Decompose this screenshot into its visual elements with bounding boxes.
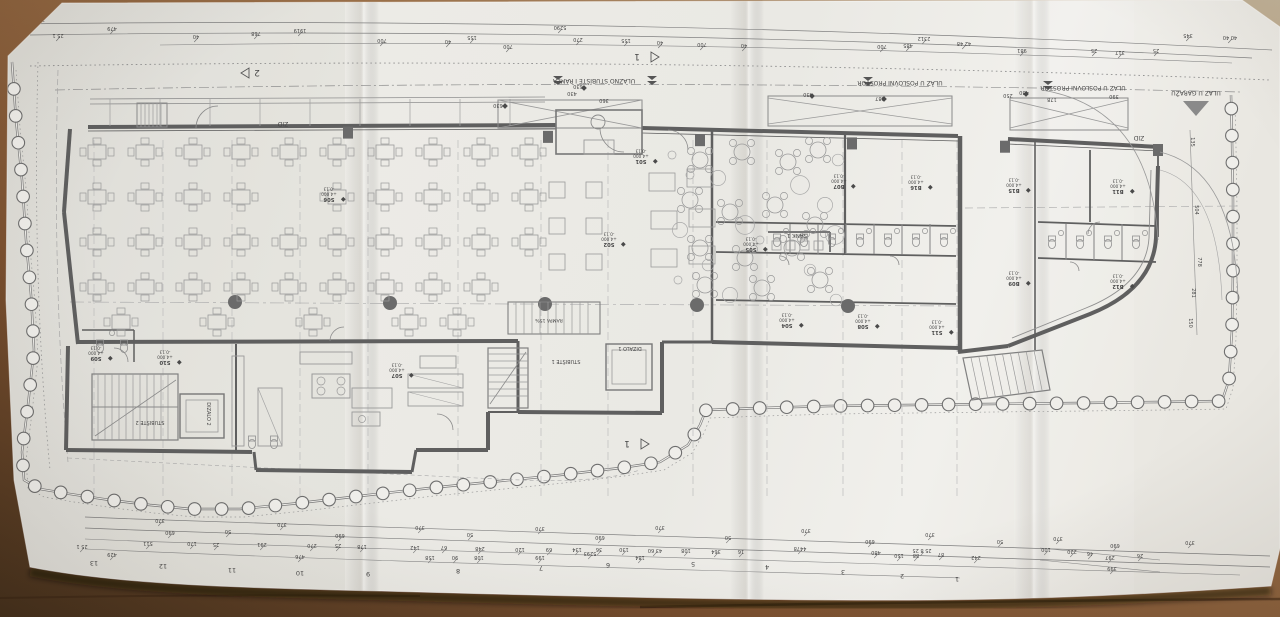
dimension-label: 690 <box>1110 542 1120 548</box>
svg-text:158: 158 <box>425 554 435 560</box>
svg-text:270: 270 <box>307 542 317 548</box>
svg-text:25: 25 <box>213 541 219 547</box>
dimension-label: 480 <box>871 549 881 555</box>
svg-text:ULAZ U POSLOVNI PROSTOR: ULAZ U POSLOVNI PROSTOR <box>857 79 942 86</box>
dimension-label: 364 <box>711 548 721 554</box>
svg-text:-0.13: -0.13 <box>603 232 614 237</box>
svg-text:43 60: 43 60 <box>648 547 662 553</box>
dimension-label: 25 1 <box>52 32 63 38</box>
dimension-label: 370 <box>535 525 545 531</box>
svg-text:317: 317 <box>1115 49 1125 55</box>
dimension-label: 370 <box>801 527 811 533</box>
svg-text:1: 1 <box>624 438 630 448</box>
svg-text:370: 370 <box>925 531 935 537</box>
svg-text:100: 100 <box>1041 546 1051 552</box>
label-rampa-15: RAMPA 15% <box>535 317 563 323</box>
grid-axis-number: 9 <box>366 570 370 578</box>
svg-text:155: 155 <box>621 37 631 43</box>
svg-text:13: 13 <box>90 559 98 567</box>
dimension-label: 25 <box>335 542 341 548</box>
grid-axis-number: 6 <box>606 561 610 569</box>
dimension-label: 504 <box>1193 205 1199 215</box>
dimension-label: 429 <box>107 551 117 557</box>
label-stubiste-1: STUBIŠTE 1 <box>552 358 581 365</box>
dimension-label: 479 <box>107 25 117 31</box>
svg-text:STUBIŠTE 1: STUBIŠTE 1 <box>552 358 581 365</box>
dimension-label: 69 <box>546 546 552 552</box>
dimension-label: 370 <box>155 517 165 523</box>
dimension-label: 630 <box>493 102 503 108</box>
dimension-label: 370 <box>655 524 665 530</box>
floor-plan-photo-svg: ULAZNO STUBIŠTE I RAMPAULAZ U POSLOVNI P… <box>0 0 1280 617</box>
dimension-label: 250 <box>1003 92 1013 98</box>
svg-text:364: 364 <box>711 548 721 554</box>
svg-text:430: 430 <box>1019 89 1029 95</box>
svg-text:479: 479 <box>107 25 117 31</box>
dimension-label: 87 <box>938 551 944 557</box>
svg-text:120: 120 <box>515 546 525 552</box>
dimension-label: 150 <box>894 552 904 558</box>
svg-text:67: 67 <box>441 544 447 550</box>
svg-text:87: 87 <box>938 551 944 557</box>
dimension-label: 40 <box>193 33 199 39</box>
svg-text:178: 178 <box>1047 96 1057 102</box>
svg-text:178: 178 <box>357 543 367 549</box>
dimension-label: 26 <box>1137 552 1143 558</box>
dimension-label: 40 40 <box>1223 34 1237 40</box>
svg-text:50: 50 <box>725 534 731 540</box>
dimension-label: 43 60 <box>648 547 662 553</box>
svg-text:155: 155 <box>467 34 477 40</box>
dimension-label: 134 <box>572 546 582 552</box>
dimension-label: 50 <box>225 528 231 534</box>
svg-text:504: 504 <box>1193 205 1199 215</box>
svg-text:4: 4 <box>765 563 769 571</box>
dimension-label: 430 <box>1019 89 1029 95</box>
dimension-label: 88 <box>913 552 919 558</box>
dimension-label: 430 <box>567 90 577 96</box>
svg-text:ULAZ U GARAŽU: ULAZ U GARAŽU <box>1171 89 1221 97</box>
grid-axis-number: 8 <box>456 567 460 575</box>
photo-of-floor-plan: ULAZNO STUBIŠTE I RAMPAULAZ U POSLOVNI P… <box>0 0 1280 617</box>
label-ulaz-u-garazu: ULAZ U GARAŽU <box>1171 89 1221 97</box>
svg-text:135: 135 <box>1189 137 1195 147</box>
dimension-label: 40 <box>445 38 451 44</box>
label-dizalo-1: DIZALO 1 <box>618 345 641 351</box>
svg-text:700: 700 <box>377 37 387 43</box>
svg-text:-0.13: -0.13 <box>1112 274 1123 279</box>
dimension-label: 40 <box>657 39 663 45</box>
svg-text:690: 690 <box>165 529 175 535</box>
label-sank-1: SANK 1 <box>787 232 807 238</box>
svg-text:297: 297 <box>1105 554 1115 560</box>
dimension-label: 700 <box>503 43 513 49</box>
svg-text:ZID: ZID <box>277 120 288 127</box>
dimension-label: 178 <box>357 543 367 549</box>
svg-text:10: 10 <box>296 569 304 577</box>
dimension-label: 2312 <box>918 35 931 41</box>
svg-text:50: 50 <box>467 531 473 537</box>
dimension-label: 170 <box>187 540 197 546</box>
dimension-label: 390 <box>1109 93 1119 99</box>
dimension-label: 142 <box>410 544 420 550</box>
svg-text:476: 476 <box>295 553 305 559</box>
dimension-label: 399 <box>1107 565 1117 571</box>
dimension-label: 511 <box>143 540 153 546</box>
svg-text:370: 370 <box>1053 535 1063 541</box>
svg-text:88: 88 <box>913 552 919 558</box>
svg-text:-0.13: -0.13 <box>857 314 868 319</box>
svg-text:25: 25 <box>335 542 341 548</box>
dimension-label: 25 <box>213 541 219 547</box>
label-zid-1: ZID <box>277 120 288 127</box>
dimension-label: 287 <box>875 95 885 101</box>
svg-text:1: 1 <box>634 51 640 61</box>
dimension-label: 291 <box>257 541 267 547</box>
svg-text:46: 46 <box>1087 550 1093 556</box>
dimension-label: 108 <box>474 554 484 560</box>
dimension-label: 690 <box>865 538 875 544</box>
svg-text:690: 690 <box>595 534 605 540</box>
svg-text:981: 981 <box>1017 47 1027 53</box>
svg-text:370: 370 <box>1185 539 1195 545</box>
svg-text:90: 90 <box>452 554 458 560</box>
dimension-label: 135 <box>1189 137 1195 147</box>
dimension-label: 16 <box>738 548 744 554</box>
svg-text:430: 430 <box>567 90 577 96</box>
grid-axis-number: 3 <box>841 568 845 576</box>
dimension-label: 778 <box>1196 257 1202 267</box>
dimension-label: 248 <box>475 545 485 551</box>
svg-text:DIZALO 1: DIZALO 1 <box>618 345 641 351</box>
svg-text:-0.13: -0.13 <box>90 346 101 351</box>
dimension-label: 430 <box>803 91 813 97</box>
dimension-label: 242 <box>971 554 981 560</box>
svg-text:370: 370 <box>535 525 545 531</box>
dimension-label: 630 <box>573 83 583 89</box>
svg-text:134: 134 <box>572 546 582 552</box>
label-zid-2: ZID <box>1133 134 1144 141</box>
grid-axis-number: 12 <box>159 562 167 570</box>
svg-text:142: 142 <box>410 544 420 550</box>
dimension-label: 100 <box>1041 546 1051 552</box>
svg-text:170: 170 <box>187 540 197 546</box>
svg-text:DIZALO 2: DIZALO 2 <box>205 402 211 425</box>
dimension-label: 700 <box>377 37 387 43</box>
svg-text:630: 630 <box>493 102 503 108</box>
svg-text:281: 281 <box>1190 288 1196 298</box>
svg-text:370: 370 <box>155 517 165 523</box>
dimension-label: 690 <box>335 532 345 538</box>
dimension-label: 690 <box>165 529 175 535</box>
svg-text:9: 9 <box>366 570 370 578</box>
svg-text:ULAZNO STUBIŠTE I RAMPA: ULAZNO STUBIŠTE I RAMPA <box>552 77 635 84</box>
svg-text:360: 360 <box>599 97 609 103</box>
dimension-label: 50 <box>725 534 731 540</box>
dimension-label: 50 <box>467 531 473 537</box>
dimension-label: 25 1 <box>76 543 87 549</box>
svg-text:5293: 5293 <box>584 550 597 556</box>
svg-text:12: 12 <box>159 562 167 570</box>
grid-axis-number: 11 <box>228 566 236 574</box>
svg-text:700: 700 <box>877 43 887 49</box>
svg-text:370: 370 <box>801 527 811 533</box>
svg-text:6: 6 <box>606 561 610 569</box>
grid-axis-number: 2 <box>900 572 904 580</box>
svg-text:1: 1 <box>955 575 959 583</box>
svg-text:430: 430 <box>803 91 813 97</box>
svg-text:480: 480 <box>871 549 881 555</box>
svg-text:-0.13: -0.13 <box>745 237 756 242</box>
svg-text:40: 40 <box>657 39 663 45</box>
dimension-label: 220 <box>1067 548 1077 554</box>
svg-text:345: 345 <box>1183 32 1193 38</box>
dimension-label: 345 <box>1183 32 1193 38</box>
svg-text:7: 7 <box>539 564 543 572</box>
dimension-label: 199 <box>535 554 545 560</box>
dimension-label: 130 <box>619 546 629 552</box>
dimension-label: 281 <box>1190 288 1196 298</box>
svg-text:778: 778 <box>1196 257 1202 267</box>
svg-text:-0.13: -0.13 <box>159 350 170 355</box>
svg-text:291: 291 <box>257 541 267 547</box>
svg-text:199: 199 <box>535 554 545 560</box>
svg-text:700: 700 <box>697 41 707 47</box>
svg-text:-0.13: -0.13 <box>833 174 844 179</box>
dimension-label: 50 <box>997 538 1003 544</box>
grid-axis-number: 5 <box>691 560 695 568</box>
label-stubiste-2: STUBIŠTE 2 <box>136 419 165 426</box>
svg-text:485: 485 <box>903 42 913 48</box>
dimension-label: 5290 <box>554 24 567 30</box>
svg-text:4478: 4478 <box>794 545 807 551</box>
dimension-label: 67 <box>441 544 447 550</box>
svg-text:40: 40 <box>193 33 199 39</box>
dimension-label: 108 <box>681 547 691 553</box>
dimension-label: 690 <box>595 534 605 540</box>
svg-text:50: 50 <box>997 538 1003 544</box>
dimension-label: 370 <box>415 524 425 530</box>
svg-text:511: 511 <box>143 540 153 546</box>
svg-text:RAMPA 15%: RAMPA 15% <box>535 317 563 323</box>
dimension-label: 317 <box>1115 49 1125 55</box>
dimension-label: 4478 <box>794 545 807 551</box>
dimension-label: 297 <box>1105 554 1115 560</box>
svg-text:429: 429 <box>107 551 117 557</box>
svg-text:25: 25 <box>1153 47 1159 53</box>
grid-axis-number: 10 <box>296 569 304 577</box>
dimension-label: 360 <box>599 97 609 103</box>
dimension-label: 370 <box>925 531 935 537</box>
svg-text:287: 287 <box>875 95 885 101</box>
svg-text:40 40: 40 40 <box>1223 34 1237 40</box>
svg-text:5: 5 <box>691 560 695 568</box>
label-ulaz-u-poslovni-prostor-2: ULAZ U POSLOVNI PROSTOR <box>1040 84 1125 91</box>
svg-text:25 1: 25 1 <box>76 543 87 549</box>
svg-text:630: 630 <box>573 83 583 89</box>
svg-text:690: 690 <box>1110 542 1120 548</box>
svg-text:220: 220 <box>1067 548 1077 554</box>
svg-text:STUBIŠTE 2: STUBIŠTE 2 <box>136 419 165 426</box>
svg-text:-0.13: -0.13 <box>391 363 402 368</box>
svg-text:390: 390 <box>1109 93 1119 99</box>
svg-text:ULAZ U POSLOVNI PROSTOR: ULAZ U POSLOVNI PROSTOR <box>1040 84 1125 91</box>
svg-text:370: 370 <box>277 521 287 527</box>
svg-text:370: 370 <box>415 524 425 530</box>
svg-text:-0.13: -0.13 <box>635 149 646 154</box>
svg-text:ZID: ZID <box>1133 134 1144 141</box>
svg-text:-0.13: -0.13 <box>1008 178 1019 183</box>
svg-text:8: 8 <box>456 567 460 575</box>
grid-axis-number: 1 <box>955 575 959 583</box>
label-ulaz-u-poslovni-prostor-1: ULAZ U POSLOVNI PROSTOR <box>857 79 942 86</box>
grid-axis-number: 13 <box>90 559 98 567</box>
svg-text:270: 270 <box>573 36 583 42</box>
dimension-label: 25 <box>1153 47 1159 53</box>
dimension-label: 270 <box>307 542 317 548</box>
svg-text:-0.13: -0.13 <box>1008 271 1019 276</box>
svg-text:690: 690 <box>865 538 875 544</box>
svg-text:768: 768 <box>251 30 261 36</box>
dimension-label: 370 <box>1053 535 1063 541</box>
svg-text:3: 3 <box>841 568 845 576</box>
svg-text:2: 2 <box>254 67 260 77</box>
svg-text:150: 150 <box>1187 318 1193 328</box>
svg-text:700: 700 <box>503 43 513 49</box>
dimension-label: 25 <box>1091 47 1097 53</box>
svg-text:242: 242 <box>971 554 981 560</box>
svg-text:50: 50 <box>225 528 231 534</box>
svg-text:40: 40 <box>741 42 747 48</box>
dimension-label: 270 <box>573 36 583 42</box>
svg-text:SANK 1: SANK 1 <box>787 232 807 238</box>
label-dizalo-2: DIZALO 2 <box>205 402 211 425</box>
svg-text:370: 370 <box>655 524 665 530</box>
dimension-label: 370 <box>277 521 287 527</box>
dimension-label: 5293 <box>584 550 597 556</box>
svg-text:248: 248 <box>475 545 485 551</box>
dimension-label: 120 <box>515 546 525 552</box>
svg-text:1919: 1919 <box>294 27 307 33</box>
svg-text:-0.13: -0.13 <box>781 313 792 318</box>
svg-text:26: 26 <box>1137 552 1143 558</box>
dimension-label: 46 <box>1087 550 1093 556</box>
svg-text:-0.13: -0.13 <box>910 175 921 180</box>
svg-text:250: 250 <box>1003 92 1013 98</box>
svg-text:42 48: 42 48 <box>957 40 971 46</box>
svg-text:690: 690 <box>335 532 345 538</box>
dimension-label: 1919 <box>294 27 307 33</box>
grid-axis-number: 4 <box>765 563 769 571</box>
dimension-label: 40 <box>741 42 747 48</box>
svg-text:108: 108 <box>681 547 691 553</box>
svg-text:69: 69 <box>546 546 552 552</box>
svg-text:5290: 5290 <box>554 24 567 30</box>
dimension-label: 981 <box>1017 47 1027 53</box>
svg-text:25 1: 25 1 <box>52 32 63 38</box>
svg-text:-0.13: -0.13 <box>323 187 334 192</box>
svg-text:108: 108 <box>474 554 484 560</box>
dimension-label: 178 <box>1047 96 1057 102</box>
dimension-label: 768 <box>251 30 261 36</box>
dimension-label: 700 <box>877 43 887 49</box>
svg-text:184: 184 <box>635 554 645 560</box>
dimension-label: 155 <box>621 37 631 43</box>
dimension-label: 485 <box>903 42 913 48</box>
svg-text:2312: 2312 <box>918 35 931 41</box>
paper-sheet <box>0 0 1280 617</box>
svg-text:40: 40 <box>445 38 451 44</box>
dimension-label: 42 48 <box>957 40 971 46</box>
dimension-label: 158 <box>425 554 435 560</box>
svg-text:-0.13: -0.13 <box>931 320 942 325</box>
svg-text:25: 25 <box>1091 47 1097 53</box>
label-ulazno-stubiste-i-rampa: ULAZNO STUBIŠTE I RAMPA <box>552 77 635 84</box>
dimension-label: 700 <box>697 41 707 47</box>
dimension-label: 150 <box>1187 318 1193 328</box>
svg-text:16: 16 <box>738 548 744 554</box>
svg-text:130: 130 <box>619 546 629 552</box>
svg-text:2: 2 <box>900 572 904 580</box>
svg-text:399: 399 <box>1107 565 1117 571</box>
dimension-label: 90 <box>452 554 458 560</box>
svg-text:-0.13: -0.13 <box>1112 179 1123 184</box>
svg-text:11: 11 <box>228 566 236 574</box>
dimension-label: 155 <box>467 34 477 40</box>
dimension-label: 476 <box>295 553 305 559</box>
svg-text:150: 150 <box>894 552 904 558</box>
dimension-label: 184 <box>635 554 645 560</box>
grid-axis-number: 7 <box>539 564 543 572</box>
dimension-label: 370 <box>1185 539 1195 545</box>
